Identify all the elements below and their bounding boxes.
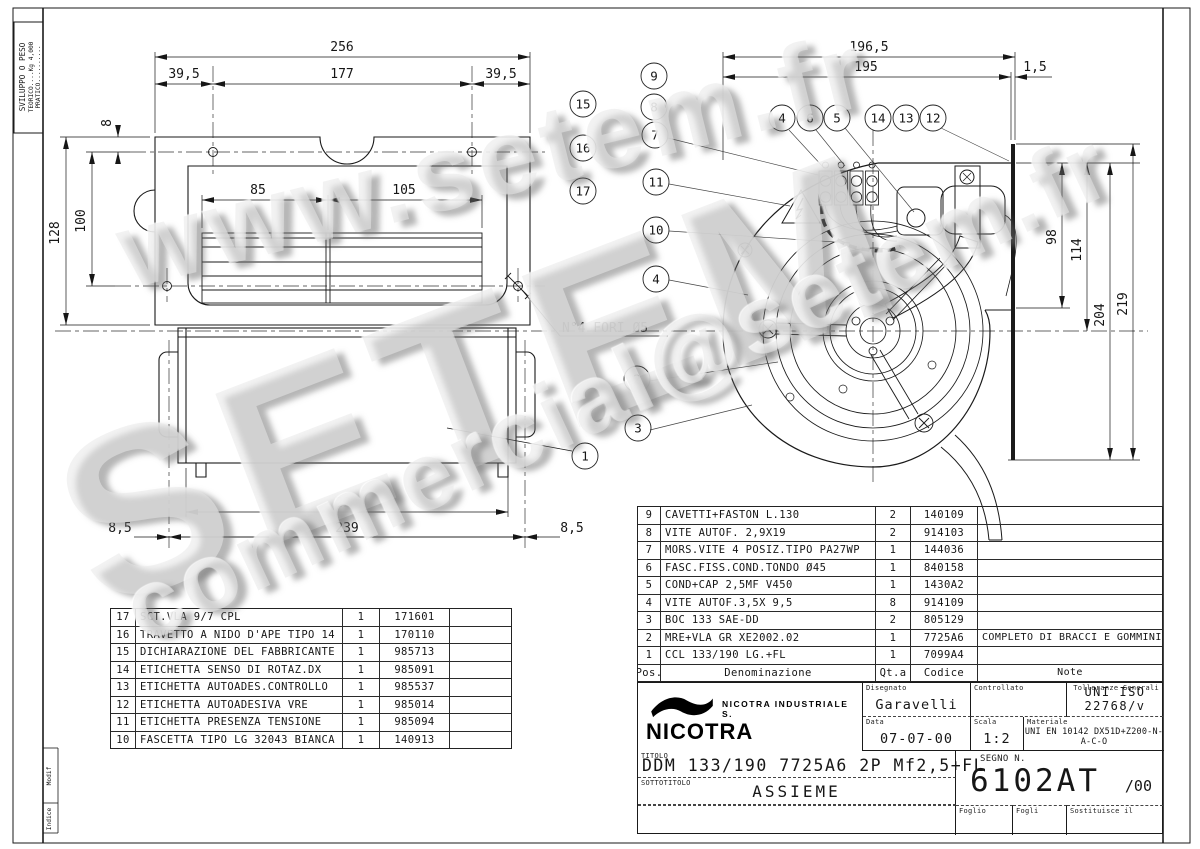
weight-box: SVILUPPO O PESO TEORICO....Kg 4,000 PRAT… xyxy=(14,22,43,133)
qty-cell: 2 xyxy=(875,612,910,629)
code-cell: 170110 xyxy=(379,627,449,644)
table-row: 6 FASC.FISS.COND.TONDO Ø45 1 840158 xyxy=(638,559,1162,577)
desc-cell: BOC 133 SAE-DD xyxy=(660,612,875,629)
desc-cell: TRAVETTO A NIDO D'APE TIPO 14 xyxy=(135,627,342,644)
balloon-11: 11 xyxy=(648,174,663,189)
dim-1-5: 1,5 xyxy=(1023,60,1046,75)
qty-cell: 1 xyxy=(875,577,910,594)
company-name: NICOTRA INDUSTRIALE S. xyxy=(722,699,862,719)
nicotra-flag-icon xyxy=(648,691,716,719)
code-cell: 140913 xyxy=(379,732,449,749)
note-cell xyxy=(977,647,1162,664)
note-cell xyxy=(977,577,1162,594)
balloon-7: 7 xyxy=(651,127,659,142)
qty-cell: 1 xyxy=(342,644,379,661)
rev-indice-label: Indice xyxy=(46,808,53,831)
code-cell: 914103 xyxy=(910,525,977,542)
table-row: 5 COND+CAP 2,5MF V450 1 1430A2 xyxy=(638,576,1162,594)
dim-8-5-left: 8,5 xyxy=(108,521,131,536)
nicotra-logo: NICOTRA xyxy=(646,719,753,745)
note-cell xyxy=(449,609,511,626)
rev-modif-label: Modif xyxy=(46,766,53,785)
code-cell: 7725A6 xyxy=(910,630,977,647)
header-note: Note xyxy=(977,665,1162,682)
balloon-5: 5 xyxy=(833,110,841,125)
code-cell: 7099A4 xyxy=(910,647,977,664)
logo-cell: NICOTRA INDUSTRIALE S. NICOTRA xyxy=(638,683,863,751)
dim-105: 105 xyxy=(392,183,415,198)
dim-39-5-right: 39,5 xyxy=(485,67,516,82)
desc-cell: SCT.VLA 9/7 CPL xyxy=(135,609,342,626)
dim-labels-front-view: 224 239 8,5 8,5 xyxy=(108,496,583,536)
desc-cell: COND+CAP 2,5MF V450 xyxy=(660,577,875,594)
balloon-9: 9 xyxy=(650,68,658,83)
qty-cell: 1 xyxy=(342,609,379,626)
pos-cell: 17 xyxy=(111,609,135,626)
scala-label: Scala xyxy=(974,718,997,726)
header-qty: Qt.a xyxy=(875,665,910,682)
qty-cell: 1 xyxy=(342,679,379,696)
pos-cell: 13 xyxy=(111,679,135,696)
dim-239: 239 xyxy=(335,521,358,536)
data-value: 07-07-00 xyxy=(863,731,970,747)
note-cell: COMPLETO DI BRACCI E GOMMINI xyxy=(977,630,1162,647)
table-row: 2 MRE+VLA GR XE2002.02 1 7725A6 COMPLETO… xyxy=(638,629,1162,647)
weight-teorico: TEORICO....Kg 4,000 xyxy=(28,41,35,112)
balloon-13: 13 xyxy=(898,110,913,125)
parts-table-right: 9 CAVETTI+FASTON L.130 2 140109 8 VITE A… xyxy=(637,506,1163,682)
balloon-1: 1 xyxy=(581,448,589,463)
dim-8: 8 xyxy=(100,119,115,127)
code-cell: 171601 xyxy=(379,609,449,626)
table-row: 3 BOC 133 SAE-DD 2 805129 xyxy=(638,611,1162,629)
desc-cell: ETICHETTA PRESENZA TENSIONE xyxy=(135,714,342,731)
code-cell: 914109 xyxy=(910,595,977,612)
desc-cell: FASC.FISS.COND.TONDO Ø45 xyxy=(660,560,875,577)
materiale-label: Materiale xyxy=(1027,718,1068,726)
materiale-cell: Materiale UNI EN 10142 DX51D+Z200-N-A-C-… xyxy=(1024,717,1164,751)
note-cell xyxy=(449,627,511,644)
table-row: 16 TRAVETTO A NIDO D'APE TIPO 14 1 17011… xyxy=(111,626,511,644)
sostituisce-label: Sostituisce il xyxy=(1070,807,1133,815)
table-row: 9 CAVETTI+FASTON L.130 2 140109 xyxy=(638,507,1162,524)
note-cell xyxy=(449,644,511,661)
desc-cell: DICHIARAZIONE DEL FABBRICANTE xyxy=(135,644,342,661)
qty-cell: 1 xyxy=(342,627,379,644)
desc-cell: ETICHETTA AUTOADES.CONTROLLO xyxy=(135,679,342,696)
code-cell: 140109 xyxy=(910,507,977,524)
segno-value: 6102AT xyxy=(970,763,1100,799)
holes-note: N°4 FORI Ø5 xyxy=(562,321,648,336)
titolo-cell: TITOLO DDM 133/190 7725A6 2P Mf2,5+FL xyxy=(638,751,956,778)
high-voltage-warning-icon xyxy=(782,190,820,223)
scroll-screws xyxy=(786,293,936,401)
balloon-16: 16 xyxy=(575,140,590,155)
dim-177: 177 xyxy=(330,67,353,82)
desc-cell: VITE AUTOF.3,5X 9,5 xyxy=(660,595,875,612)
table-header-row: Pos. Denominazione Qt.a Codice Note xyxy=(638,664,1162,682)
fan-view xyxy=(723,144,1016,540)
balloon-4-left: 4 xyxy=(652,271,660,286)
pos-cell: 9 xyxy=(638,507,660,524)
pos-cell: 14 xyxy=(111,662,135,679)
disegnato-label: Disegnato xyxy=(866,684,907,692)
balloon-4-top: 4 xyxy=(778,110,786,125)
table-row: 11 ETICHETTA PRESENZA TENSIONE 1 985094 xyxy=(111,713,511,731)
table-row: 1 CCL 133/190 LG.+FL 1 7099A4 xyxy=(638,646,1162,664)
foglio-label: Foglio xyxy=(959,807,986,815)
qty-cell: 1 xyxy=(342,732,379,749)
revision-strip: Modif Indice xyxy=(43,748,58,833)
balloon-6: 6 xyxy=(806,110,814,125)
flange xyxy=(1011,144,1015,460)
header-pos: Pos. xyxy=(638,665,660,682)
qty-cell: 1 xyxy=(342,714,379,731)
dim-98: 98 xyxy=(1045,229,1060,245)
wiring xyxy=(825,205,897,241)
parts-table-left: 17 SCT.VLA 9/7 CPL 1 171601 16 TRAVETTO … xyxy=(110,608,512,749)
code-cell: 985537 xyxy=(379,679,449,696)
note-cell xyxy=(449,662,511,679)
pos-cell: 10 xyxy=(111,732,135,749)
balloon-12: 12 xyxy=(925,110,940,125)
dim-114: 114 xyxy=(1070,238,1085,262)
note-cell xyxy=(977,542,1162,559)
desc-cell: MORS.VITE 4 POSIZ.TIPO PA27WP xyxy=(660,542,875,559)
disegnato-value: Garavelli xyxy=(863,697,970,713)
pos-cell: 4 xyxy=(638,595,660,612)
pos-cell: 11 xyxy=(111,714,135,731)
grille xyxy=(202,233,482,303)
fogli-cell: Fogli xyxy=(1013,805,1067,835)
front-view xyxy=(159,328,535,477)
qty-cell: 1 xyxy=(875,630,910,647)
desc-cell: ETICHETTA SENSO DI ROTAZ.DX xyxy=(135,662,342,679)
dim-196-5: 196,5 xyxy=(849,40,888,55)
table-row: 17 SCT.VLA 9/7 CPL 1 171601 xyxy=(111,609,511,626)
pos-cell: 5 xyxy=(638,577,660,594)
note-cell xyxy=(977,595,1162,612)
dim-256: 256 xyxy=(330,40,353,55)
header-code: Codice xyxy=(910,665,977,682)
empty-cell xyxy=(638,805,956,835)
scala-cell: Scala 1:2 xyxy=(971,717,1024,751)
junction-box xyxy=(897,187,943,235)
materiale-value: UNI EN 10142 DX51D+Z200-N-A-C-O xyxy=(1024,727,1164,747)
sostituisce-cell: Sostituisce il xyxy=(1067,805,1163,835)
code-cell: 985094 xyxy=(379,714,449,731)
weight-box-title: SVILUPPO O PESO xyxy=(18,42,27,111)
qty-cell: 1 xyxy=(875,542,910,559)
dim-8-5-right: 8,5 xyxy=(560,521,583,536)
desc-cell: CCL 133/190 LG.+FL xyxy=(660,647,875,664)
scala-value: 1:2 xyxy=(971,731,1023,747)
code-cell: 985713 xyxy=(379,644,449,661)
weight-pratico: PRATICO.......... xyxy=(35,45,42,108)
terminal-block xyxy=(819,162,879,205)
dim-labels-top-view: 256 39,5 177 39,5 8 128 100 85 105 N°4 F… xyxy=(48,40,648,336)
dim-219: 219 xyxy=(1116,292,1131,315)
segno-revision: /00 xyxy=(1125,777,1152,795)
desc-cell: FASCETTA TIPO LG 32043 BIANCA xyxy=(135,732,342,749)
qty-cell: 1 xyxy=(342,662,379,679)
table-row: 10 FASCETTA TIPO LG 32043 BIANCA 1 14091… xyxy=(111,731,511,749)
code-cell: 805129 xyxy=(910,612,977,629)
note-cell xyxy=(977,525,1162,542)
note-cell xyxy=(977,612,1162,629)
sottotitolo-value: ASSIEME xyxy=(638,782,955,801)
table-row: 4 VITE AUTOF.3,5X 9,5 8 914109 xyxy=(638,594,1162,612)
dim-224: 224 xyxy=(335,496,359,511)
balloon-17: 17 xyxy=(575,183,590,198)
title-block: NICOTRA INDUSTRIALE S. NICOTRA Disegnato… xyxy=(637,682,1163,834)
balloon-15: 15 xyxy=(575,96,590,111)
code-cell: 144036 xyxy=(910,542,977,559)
drawing-sheet: SVILUPPO O PESO TEORICO....Kg 4,000 PRAT… xyxy=(0,0,1200,849)
controllato-cell: Controllato xyxy=(971,683,1067,717)
qty-cell: 2 xyxy=(875,525,910,542)
pos-cell: 2 xyxy=(638,630,660,647)
note-cell xyxy=(977,560,1162,577)
table-row: 12 ETICHETTA AUTOADESIVA VRE 1 985014 xyxy=(111,696,511,714)
balloon-14: 14 xyxy=(870,110,885,125)
code-cell: 985091 xyxy=(379,662,449,679)
dim-128: 128 xyxy=(48,221,63,244)
qty-cell: 2 xyxy=(875,507,910,524)
dim-39-5-left: 39,5 xyxy=(168,67,199,82)
pos-cell: 15 xyxy=(111,644,135,661)
sottotitolo-cell: SOTTOTITOLO ASSIEME xyxy=(638,778,956,805)
pos-cell: 1 xyxy=(638,647,660,664)
code-cell: 840158 xyxy=(910,560,977,577)
balloon-8: 8 xyxy=(650,99,658,114)
note-cell xyxy=(449,714,511,731)
table-row: 8 VITE AUTOF. 2,9X19 2 914103 xyxy=(638,524,1162,542)
balloon-10: 10 xyxy=(648,222,663,237)
dim-labels-fan-view: 196,5 195 1,5 98 114 204 219 xyxy=(849,40,1131,327)
desc-cell: MRE+VLA GR XE2002.02 xyxy=(660,630,875,647)
desc-cell: VITE AUTOF. 2,9X19 xyxy=(660,525,875,542)
table-row: 15 DICHIARAZIONE DEL FABBRICANTE 1 98571… xyxy=(111,643,511,661)
pos-cell: 8 xyxy=(638,525,660,542)
titolo-value: DDM 133/190 7725A6 2P Mf2,5+FL xyxy=(642,756,951,775)
capacitor xyxy=(941,186,1005,234)
pos-cell: 16 xyxy=(111,627,135,644)
pos-cell: 12 xyxy=(111,697,135,714)
table-row: 7 MORS.VITE 4 POSIZ.TIPO PA27WP 1 144036 xyxy=(638,541,1162,559)
data-label: Data xyxy=(866,718,884,726)
desc-cell: CAVETTI+FASTON L.130 xyxy=(660,507,875,524)
dim-195: 195 xyxy=(854,60,877,75)
header-desc: Denominazione xyxy=(660,665,875,682)
balloon-3: 3 xyxy=(634,420,642,435)
pos-cell: 6 xyxy=(638,560,660,577)
dim-204: 204 xyxy=(1093,303,1108,327)
pos-cell: 7 xyxy=(638,542,660,559)
code-cell: 1430A2 xyxy=(910,577,977,594)
table-row: 13 ETICHETTA AUTOADES.CONTROLLO 1 985537 xyxy=(111,678,511,696)
note-cell xyxy=(449,679,511,696)
dim-100: 100 xyxy=(74,209,89,232)
qty-cell: 1 xyxy=(342,697,379,714)
note-cell xyxy=(449,697,511,714)
note-cell xyxy=(977,507,1162,524)
pos-cell: 3 xyxy=(638,612,660,629)
code-cell: 985014 xyxy=(379,697,449,714)
table-row: 14 ETICHETTA SENSO DI ROTAZ.DX 1 985091 xyxy=(111,661,511,679)
balloon-2: 2 xyxy=(633,371,641,386)
disegnato-cell: Disegnato Garavelli xyxy=(863,683,971,717)
tolleranze-cell: Tolleranze Generali UNI ISO 22768/v xyxy=(1067,683,1163,717)
qty-cell: 1 xyxy=(875,647,910,664)
centerlines xyxy=(55,66,1148,548)
note-cell xyxy=(449,732,511,749)
tolleranze-value: UNI ISO 22768/v xyxy=(1067,685,1163,713)
fogli-label: Fogli xyxy=(1016,807,1039,815)
segno-cell: SEGNO N. 6102AT /00 xyxy=(956,751,1164,805)
foglio-cell: Foglio xyxy=(956,805,1013,835)
qty-cell: 8 xyxy=(875,595,910,612)
controllato-label: Controllato xyxy=(974,684,1024,692)
top-view xyxy=(134,137,531,325)
desc-cell: ETICHETTA AUTOADESIVA VRE xyxy=(135,697,342,714)
balloons xyxy=(570,63,946,469)
dim-85: 85 xyxy=(250,183,266,198)
balloon-numbers: 15 16 17 9 8 7 11 10 4 2 3 4 6 5 14 13 1… xyxy=(575,68,940,463)
data-cell: Data 07-07-00 xyxy=(863,717,971,751)
qty-cell: 1 xyxy=(875,560,910,577)
